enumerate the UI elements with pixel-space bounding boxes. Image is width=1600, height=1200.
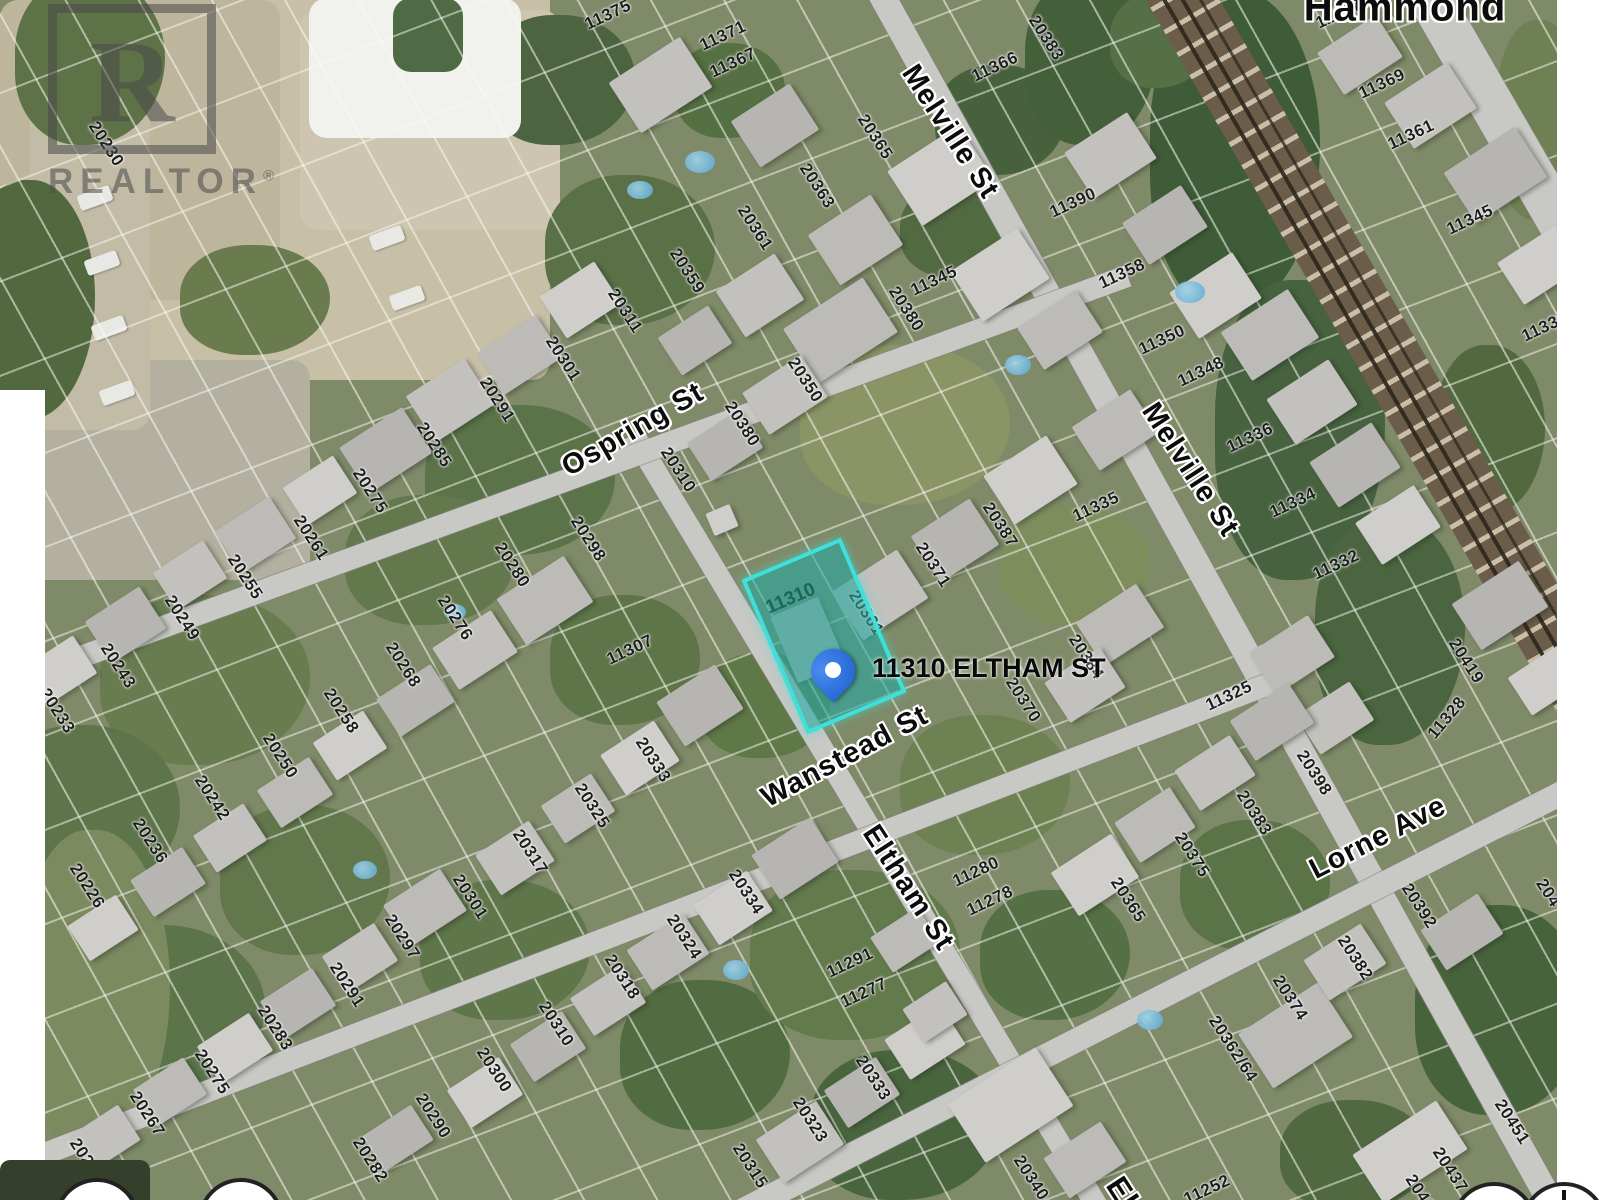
parcel-number-label: 20250 <box>258 730 302 783</box>
parcel-number-label: 11252 <box>1181 1171 1234 1200</box>
street-name-label: El <box>1098 1170 1145 1200</box>
parcel-number-label: 20242 <box>190 772 234 825</box>
parcel-number-label: 20310 <box>534 998 578 1051</box>
parcel-number-label: 20282 <box>348 1134 392 1187</box>
parcel-number-label: 20324 <box>662 911 706 964</box>
street-name-label: Melville St <box>1135 397 1246 543</box>
satellite-map-canvas[interactable]: 2023011375113711136711366203831137711369… <box>0 0 1600 1200</box>
parcel-number-label: 20383 <box>1024 12 1068 65</box>
parcel-number-label: 11328 <box>1424 693 1471 743</box>
parcel-number-label: 20317 <box>508 826 552 879</box>
parcel-number-label: 20318 <box>600 951 644 1004</box>
parcel-number-label: 20365 <box>1106 874 1150 927</box>
parcel-number-label: 20374 <box>1268 972 1312 1025</box>
parcel-number-label: 11361 <box>1385 116 1438 155</box>
pin-dot <box>825 662 841 678</box>
parcel-number-label: 20371 <box>911 539 955 592</box>
parcel-number-label: 20297 <box>380 911 424 964</box>
parcel-number-label: 20268 <box>381 639 425 692</box>
parcel-number-label: 20275 <box>348 465 392 518</box>
parcel-number-label: 20280 <box>490 539 534 592</box>
parcel-number-label: 20398 <box>1292 747 1336 800</box>
realtor-watermark: R REALTOR® <box>48 4 274 202</box>
parcel-number-label: 20437 <box>1428 1144 1472 1197</box>
parcel-number-label: 20291 <box>475 374 519 427</box>
parcel-number-label: 20340 <box>1009 1152 1053 1200</box>
street-name-label: Hammond <box>1304 0 1507 31</box>
parcel-number-label: 20323 <box>788 1094 832 1147</box>
parcel-number-label: 20311 <box>603 285 646 337</box>
parcel-number-label: 20301 <box>541 333 585 386</box>
parcel-number-label: 20365 <box>853 111 897 164</box>
compass-needle <box>1562 1190 1566 1200</box>
parcel-number-label: 20383 <box>1232 787 1276 840</box>
parcel-number-label: 20375 <box>1170 829 1214 882</box>
realtor-logo-frame: R <box>48 4 216 154</box>
parcel-number-label: 20267 <box>125 1088 169 1141</box>
parcel-number-label: 20361 <box>733 202 777 255</box>
parcel-number-label: 20333 <box>631 734 675 787</box>
parcel-number-label: 11358 <box>1096 255 1149 294</box>
parcel-number-label: 20276 <box>433 592 477 645</box>
parcel-number-label: 20315 <box>728 1140 772 1193</box>
parcel-number-label: 20285 <box>412 419 456 472</box>
parcel-number-label: 11278 <box>964 882 1017 921</box>
parcel-number-label: 11345 <box>1444 201 1497 240</box>
parcel-number-label: 11325 <box>1203 677 1256 716</box>
parcel-number-label: 20325 <box>570 780 614 833</box>
parcel-number-label: 20392 <box>1397 880 1441 933</box>
parcel-number-label: 11390 <box>1047 184 1100 223</box>
parcel-number-label: 11348 <box>1175 353 1228 392</box>
map-pin-icon[interactable] <box>810 648 856 706</box>
parcel-number-label: 20236 <box>128 815 172 868</box>
parcel-number-label: 11335 <box>1070 488 1123 527</box>
parcel-number-label: 11291 <box>824 944 877 983</box>
parcel-number-label: 20255 <box>223 551 267 604</box>
parcel-number-label: 11375 <box>582 0 635 34</box>
parcel-number-label: 20362/64 <box>1204 1012 1262 1086</box>
parcel-number-label: 11334 <box>1267 484 1320 523</box>
parcel-number-label: 20359 <box>665 245 709 298</box>
parcel-number-label: 20333 <box>851 1052 895 1105</box>
parcel-number-label: 20291 <box>325 959 369 1012</box>
listing-address-label: 11310 ELTHAM ST <box>872 653 1106 684</box>
parcel-number-label: 20300 <box>472 1044 516 1097</box>
parcel-number-label: 11350 <box>1136 321 1189 360</box>
left-edge-strip <box>0 390 45 1200</box>
parcel-number-label: 20350 <box>783 354 827 407</box>
street-name-label: Eltham St <box>855 819 960 957</box>
parcel-number-label: 20283 <box>253 1002 297 1055</box>
parcel-number-label: 20387 <box>978 499 1022 552</box>
realtor-wordmark: REALTOR® <box>48 162 274 202</box>
parcel-number-label: 11277 <box>838 974 891 1013</box>
highlighted-parcel-number: 11310 <box>763 579 819 619</box>
parcel-number-label: 20290 <box>411 1090 455 1143</box>
right-edge-strip <box>1557 0 1600 1200</box>
parcel-number-label: 20382 <box>1333 932 1377 985</box>
parcel-number-label: 11369 <box>1356 65 1409 104</box>
parcel-number-label: 20301 <box>448 871 492 924</box>
parcel-number-label: 20298 <box>566 513 610 566</box>
parcel-number-label: 11336 <box>1224 419 1277 458</box>
parcel-number-label: 20275 <box>190 1046 234 1099</box>
registered-trademark: ® <box>263 167 274 184</box>
parcel-number-label: 20226 <box>65 860 109 913</box>
parcel-number-label: 11307 <box>604 631 657 670</box>
parcel-number-label: 20334 <box>724 866 768 919</box>
parcel-number-label: 20419 <box>1444 635 1488 688</box>
parcel-number-label: 20249 <box>160 592 204 645</box>
parcel-number-label: 20258 <box>319 685 363 738</box>
parcel-number-label: 2042 <box>1401 1171 1439 1200</box>
parcel-number-label: 20451 <box>1490 1096 1534 1149</box>
parcel-number-label: 20380 <box>720 398 764 451</box>
parcel-number-label: 11345 <box>908 262 961 301</box>
parcel-number-label: 11332 <box>1310 546 1363 585</box>
parcel-number-label: 20363 <box>795 160 839 213</box>
parcel-number-label: 20243 <box>96 640 140 693</box>
street-name-label: Lorne Ave <box>1304 790 1451 887</box>
parcel-number-label: 11280 <box>950 853 1003 892</box>
realtor-logo-r: R <box>89 23 174 141</box>
parcel-number-label: 20310 <box>656 444 700 497</box>
parcel-number-label: 20261 <box>289 512 333 565</box>
parcel-number-label: 11366 <box>969 48 1022 87</box>
